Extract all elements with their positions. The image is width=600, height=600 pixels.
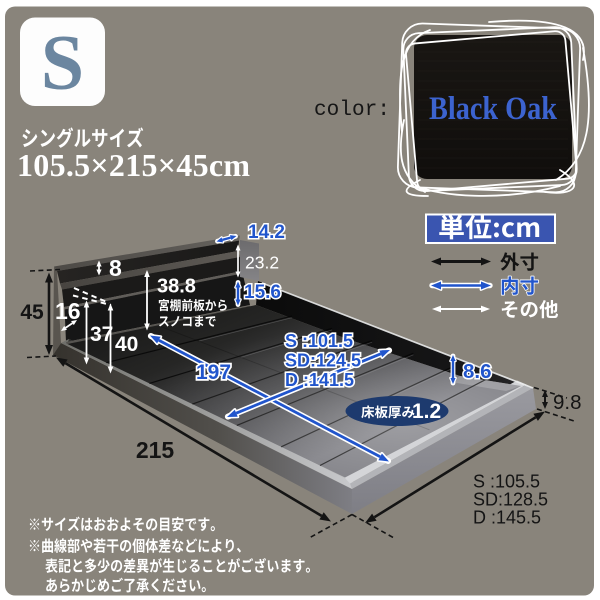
svg-text:D :145.5: D :145.5 (473, 508, 541, 528)
svg-text:40: 40 (115, 333, 138, 356)
svg-text:D :141.5: D :141.5 (285, 370, 354, 390)
svg-text:215: 215 (136, 437, 175, 463)
svg-text:SD:124.5: SD:124.5 (285, 351, 361, 371)
svg-text:Black Oak: Black Oak (429, 91, 558, 127)
svg-text:16: 16 (55, 298, 81, 324)
svg-text:8: 8 (109, 255, 122, 281)
svg-text:SD:128.5: SD:128.5 (473, 490, 548, 510)
svg-text:9.8: 9.8 (553, 391, 582, 414)
svg-text:15.6: 15.6 (244, 282, 281, 303)
svg-text:S :105.5: S :105.5 (473, 472, 540, 492)
svg-text:S: S (41, 19, 84, 106)
svg-text:8.6: 8.6 (463, 360, 492, 383)
svg-text:S :101.5: S :101.5 (285, 331, 353, 351)
svg-text:197: 197 (196, 361, 231, 384)
svg-text:color:: color: (314, 99, 390, 122)
svg-text:45: 45 (20, 301, 44, 324)
svg-text:14.2: 14.2 (248, 222, 285, 243)
svg-text:105.5×215×45cm: 105.5×215×45cm (17, 147, 250, 183)
svg-text:38.8: 38.8 (157, 276, 196, 298)
svg-text:1.2: 1.2 (412, 400, 441, 423)
svg-text:23.2: 23.2 (245, 253, 279, 273)
